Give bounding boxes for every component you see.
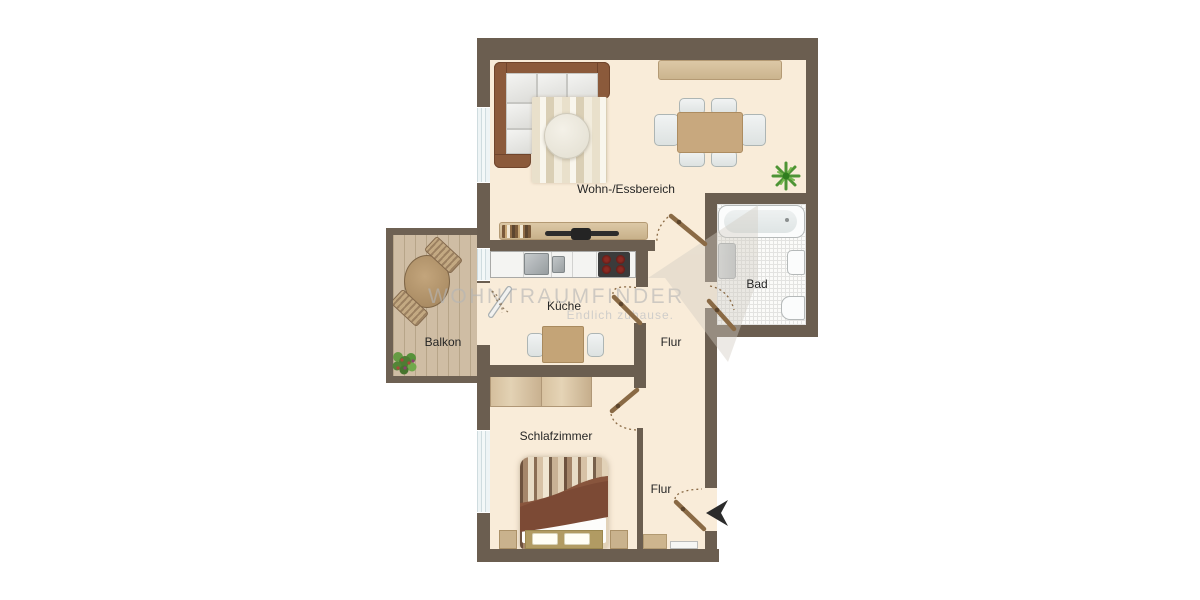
- wardrobe: [490, 376, 592, 407]
- kitchen-chair: [587, 333, 604, 357]
- stove-cooktop: [598, 252, 630, 277]
- bathroom-sink: [787, 250, 805, 275]
- dining-chair: [654, 114, 679, 146]
- room-label-flur-oben: Flur: [661, 335, 682, 349]
- stove-burner: [616, 255, 625, 264]
- nightstand: [499, 530, 517, 549]
- wall-kitchen-right-lower: [634, 323, 646, 388]
- stove-burner: [602, 255, 611, 264]
- room-label-balkon: Balkon: [425, 335, 462, 349]
- wall-bathroom-top: [717, 193, 818, 204]
- bathtub: [718, 205, 805, 238]
- bathroom-door-opening: [705, 282, 717, 308]
- wall-bathroom-bottom: [705, 325, 818, 337]
- coffee-table: [544, 113, 590, 159]
- stove-burner: [602, 265, 611, 274]
- room-label-schlafzimmer: Schlafzimmer: [520, 429, 593, 443]
- window-kitchen: [477, 248, 490, 281]
- bed-pillow: [564, 533, 590, 545]
- wall-kitchen-right-upper: [636, 240, 648, 287]
- bathtub-faucet: [785, 218, 789, 222]
- kitchen-table: [542, 326, 584, 363]
- room-label-kueche: Küche: [547, 299, 581, 313]
- book-row: [502, 225, 531, 238]
- room-label-wohn-essbereich: Wohn-/Essbereich: [577, 182, 675, 196]
- wardrobe-panel: [491, 377, 542, 406]
- double-bed: [520, 457, 608, 549]
- wall-bedroom-hall-thin: [637, 428, 643, 549]
- balcony-wall-top: [386, 228, 477, 235]
- wall-exterior-bottom: [477, 549, 719, 562]
- room-label-bad: Bad: [746, 277, 767, 291]
- bed-pillow: [532, 533, 558, 545]
- stove-burner: [616, 265, 625, 274]
- wall-exterior-top: [477, 38, 818, 60]
- kitchen-sink-small: [552, 256, 565, 273]
- wardrobe-panel: [542, 377, 592, 406]
- sofa-cushion: [506, 129, 533, 155]
- sofa-cushions-left-column: [506, 103, 533, 154]
- wall-living-south: [490, 240, 655, 251]
- hall-cabinet: [643, 534, 667, 549]
- wall-exterior-right: [806, 38, 818, 337]
- doormat: [670, 541, 698, 549]
- floor-plan-canvas: WOHNTRAUMFINDER Endlich zuhause.: [0, 0, 1200, 600]
- wall-bathroom-left: [705, 193, 717, 337]
- sofa-armrest-bottom: [494, 154, 531, 168]
- dining-chair: [741, 114, 766, 146]
- kitchen-sink-large: [524, 253, 549, 275]
- entrance-door-opening: [705, 488, 717, 531]
- window-bedroom: [477, 430, 490, 513]
- balcony-wall-left: [386, 228, 393, 383]
- sofa-cushion: [506, 103, 533, 129]
- sideboard: [658, 60, 782, 80]
- balcony-wall-bottom: [386, 376, 477, 383]
- sofa-armrest-right: [597, 62, 610, 99]
- nightstand: [610, 530, 628, 549]
- wall-kitchen-south: [490, 365, 646, 377]
- dining-table: [677, 112, 743, 153]
- toilet: [781, 296, 805, 320]
- room-label-flur-unten: Flur: [651, 482, 672, 496]
- window-living-room: [477, 107, 490, 183]
- washing-machine: [718, 243, 736, 279]
- tv-stand: [571, 228, 591, 240]
